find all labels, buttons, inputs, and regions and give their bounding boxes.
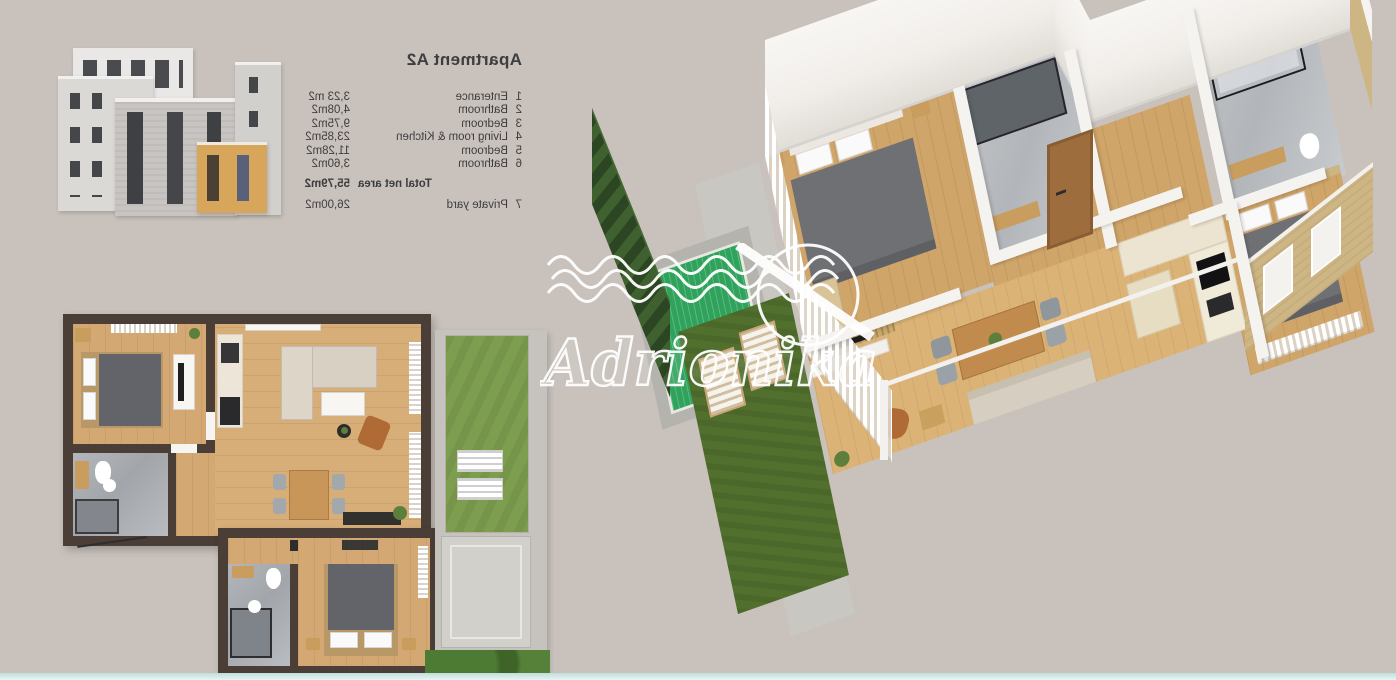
floorplan-presentation: Apartment A2 1Enterance3,23 m2 2Bathroom… xyxy=(0,0,1396,680)
toilet xyxy=(1298,131,1322,162)
watermark-text: Adrionika xyxy=(540,326,878,401)
window xyxy=(1311,206,1341,277)
right-side-wall xyxy=(1350,0,1372,110)
bottom-accent-strip xyxy=(0,673,1396,680)
vanity xyxy=(989,201,1041,233)
dining-chair xyxy=(930,335,953,360)
watermark: Adrionika xyxy=(540,243,885,408)
plant xyxy=(833,449,851,469)
door-handle xyxy=(1056,189,1066,196)
watermark-wave xyxy=(548,257,834,274)
window xyxy=(1263,243,1293,314)
vanity xyxy=(1229,146,1287,180)
entrance-door xyxy=(1047,129,1093,250)
dining-chair xyxy=(1039,296,1062,321)
